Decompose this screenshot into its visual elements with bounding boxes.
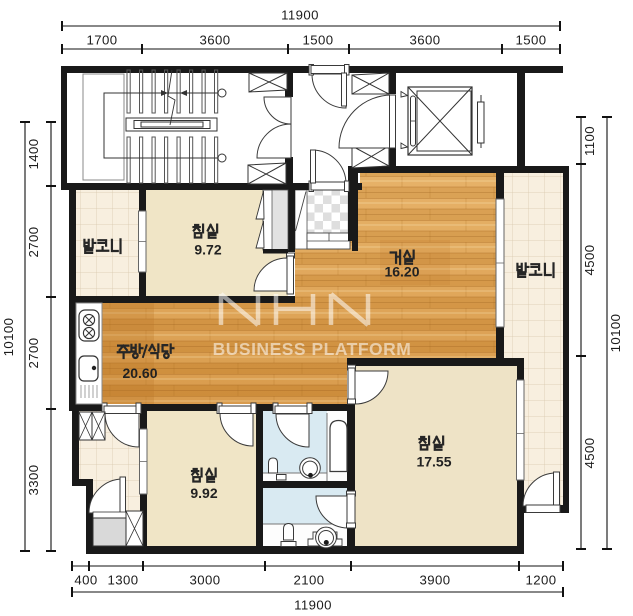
svg-text:3900: 3900: [420, 573, 451, 588]
svg-text:4500: 4500: [582, 438, 597, 469]
svg-text:9.72: 9.72: [194, 242, 221, 258]
svg-text:17.55: 17.55: [416, 454, 451, 470]
svg-text:2700: 2700: [26, 227, 41, 258]
svg-text:10100: 10100: [608, 314, 623, 353]
svg-text:4500: 4500: [582, 245, 597, 276]
svg-text:1500: 1500: [516, 33, 547, 48]
svg-text:3600: 3600: [200, 33, 231, 48]
svg-text:1400: 1400: [26, 139, 41, 170]
svg-text:1300: 1300: [108, 573, 139, 588]
svg-text:20.60: 20.60: [122, 365, 157, 381]
svg-text:2700: 2700: [26, 338, 41, 369]
svg-text:11900: 11900: [294, 598, 332, 613]
svg-text:BUSINESS PLATFORM: BUSINESS PLATFORM: [213, 339, 412, 359]
svg-text:2100: 2100: [294, 573, 325, 588]
svg-text:16.20: 16.20: [384, 264, 419, 280]
svg-text:10100: 10100: [1, 318, 16, 357]
svg-text:1100: 1100: [582, 126, 597, 156]
svg-text:3000: 3000: [190, 573, 221, 588]
svg-text:400: 400: [74, 573, 97, 588]
svg-text:3600: 3600: [410, 33, 441, 48]
svg-text:1200: 1200: [526, 573, 557, 588]
svg-text:1500: 1500: [303, 33, 334, 48]
svg-text:1700: 1700: [87, 33, 118, 48]
svg-text:3300: 3300: [26, 465, 41, 496]
svg-text:11900: 11900: [281, 8, 319, 23]
svg-text:9.92: 9.92: [190, 485, 217, 501]
